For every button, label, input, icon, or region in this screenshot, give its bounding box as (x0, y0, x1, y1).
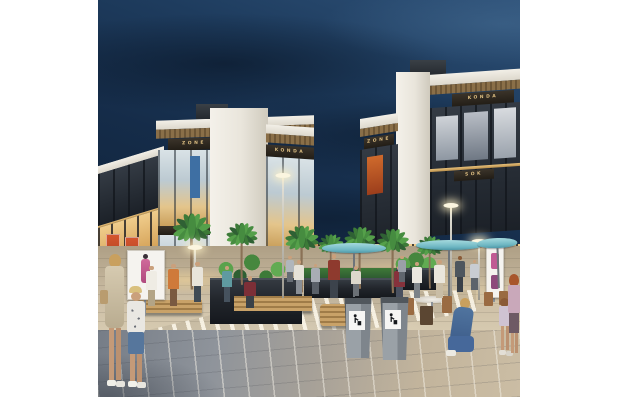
pedestrian (311, 264, 320, 294)
roller-skate (499, 350, 506, 355)
pedestrian (222, 266, 232, 302)
sneaker (107, 380, 116, 386)
seated-person (351, 266, 361, 296)
boy-shorts (128, 332, 144, 354)
fashion-display-poster (464, 111, 488, 161)
bin-lip (344, 298, 372, 304)
seated-person (244, 276, 256, 308)
woman-legs (515, 333, 518, 353)
page: ZONE ZONE KONDA KONDA SOK ZONE (0, 0, 619, 411)
lamp-head (276, 173, 291, 178)
woman-skirt (509, 313, 519, 333)
pedestrian (470, 260, 479, 290)
cafe-chair (484, 292, 493, 306)
umbrella-pole (448, 250, 450, 298)
sneaker (446, 350, 456, 356)
pedestrian (286, 256, 294, 282)
pedestrian (455, 256, 465, 292)
architectural-rendering: ZONE ZONE KONDA KONDA SOK ZONE (98, 0, 520, 397)
woman-legs (109, 328, 114, 380)
foreground-boy (123, 286, 149, 390)
trash-bin (380, 297, 409, 360)
storefront-blue-display (190, 156, 200, 198)
pedestrian (328, 254, 340, 298)
sneaker (137, 382, 146, 388)
boy-legs (130, 354, 135, 382)
pedestrian (412, 262, 422, 298)
street-lamp (282, 178, 284, 298)
woman-top (508, 285, 520, 313)
lamp-head (188, 245, 203, 250)
lamp-head (444, 203, 459, 208)
boy-shirt (127, 301, 145, 333)
litter-person-icon (387, 312, 399, 327)
boy-legs (137, 354, 142, 382)
umbrella-pole (496, 248, 499, 288)
girl-legs (501, 326, 504, 350)
pedestrian (168, 264, 179, 306)
pedestrian (434, 260, 445, 298)
red-haired-woman (507, 274, 520, 356)
umbrella-canopy (322, 243, 386, 253)
umbrella-canopy (416, 240, 482, 250)
pedestrian (398, 256, 406, 282)
woman-legs (511, 333, 514, 353)
fashion-display-poster (436, 115, 458, 161)
tote-bag (100, 290, 108, 304)
woman-legs (116, 328, 121, 380)
orange-display-poster (367, 155, 383, 196)
ad-figure-head (143, 254, 148, 259)
pedestrian (294, 260, 304, 294)
litter-person-icon (351, 313, 363, 328)
cafe-chair (420, 306, 433, 325)
litter-disposal-sign (349, 311, 365, 330)
boy-face (131, 292, 141, 301)
fashion-display-poster (494, 107, 516, 159)
pedestrian (192, 262, 203, 302)
bin-lip (380, 297, 409, 303)
crouching-woman (444, 298, 480, 362)
sneaker (128, 381, 137, 387)
trash-bin (344, 298, 372, 358)
litter-disposal-sign (385, 310, 401, 329)
